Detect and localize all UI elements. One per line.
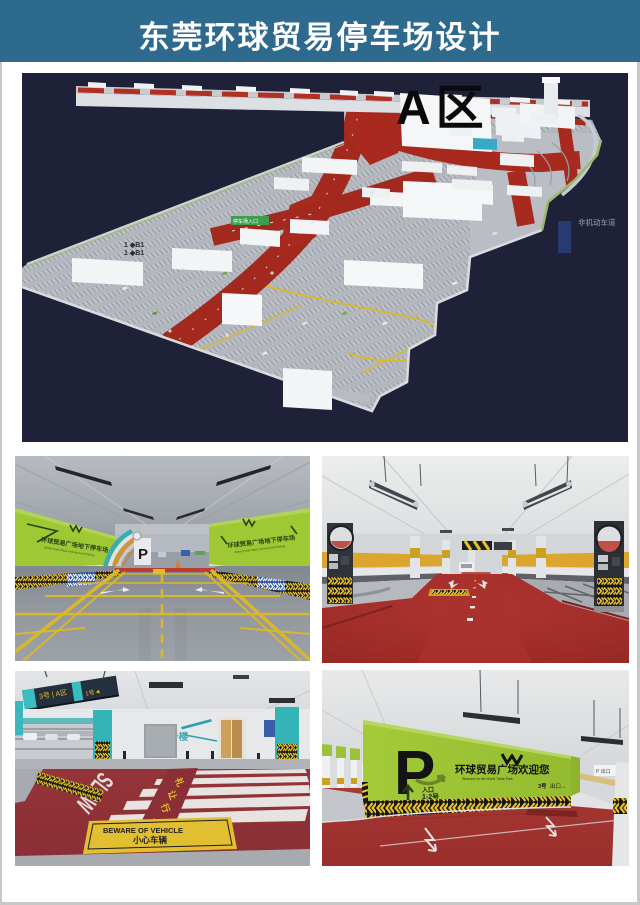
svg-text:P 出口: P 出口: [596, 768, 611, 775]
svg-text:Welcome to the World Trade Par: Welcome to the World Trade Park: [462, 777, 513, 781]
svg-text:出口→: 出口→: [550, 782, 567, 790]
svg-text:P: P: [138, 546, 148, 563]
svg-text:A区: A区: [396, 82, 489, 135]
svg-text:1 ◆B1: 1 ◆B1: [124, 250, 144, 257]
svg-text:BEWARE OF VEHICLE: BEWARE OF VEHICLE: [103, 826, 183, 835]
svg-text:停车场入口: 停车场入口: [233, 218, 258, 225]
svg-text:入口: 入口: [421, 787, 434, 794]
svg-text:3号: 3号: [538, 782, 547, 790]
svg-text:环球贸易广场欢迎您: 环球贸易广场欢迎您: [455, 763, 550, 776]
svg-text:小心车辆: 小心车辆: [132, 835, 168, 845]
svg-text:非机动车道: 非机动车道: [578, 217, 616, 227]
svg-text:1 ◆B1: 1 ◆B1: [124, 242, 144, 249]
